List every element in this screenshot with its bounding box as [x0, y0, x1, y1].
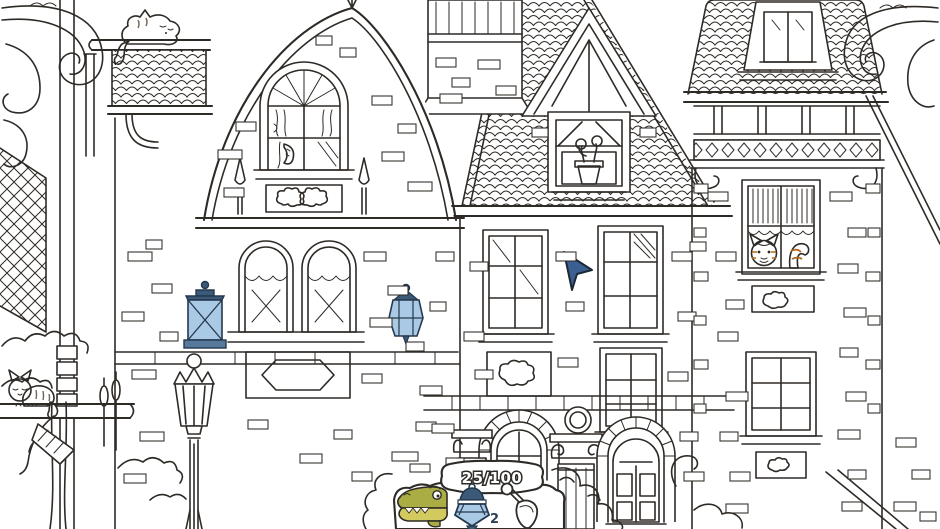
tray-item-crocodile[interactable] [398, 486, 447, 527]
game-screen: 25/100 2 [0, 0, 940, 529]
chimney-tower [418, 0, 532, 114]
mansion-line-art: 25/100 2 [0, 0, 940, 529]
lantern-count: 2 [490, 512, 499, 527]
